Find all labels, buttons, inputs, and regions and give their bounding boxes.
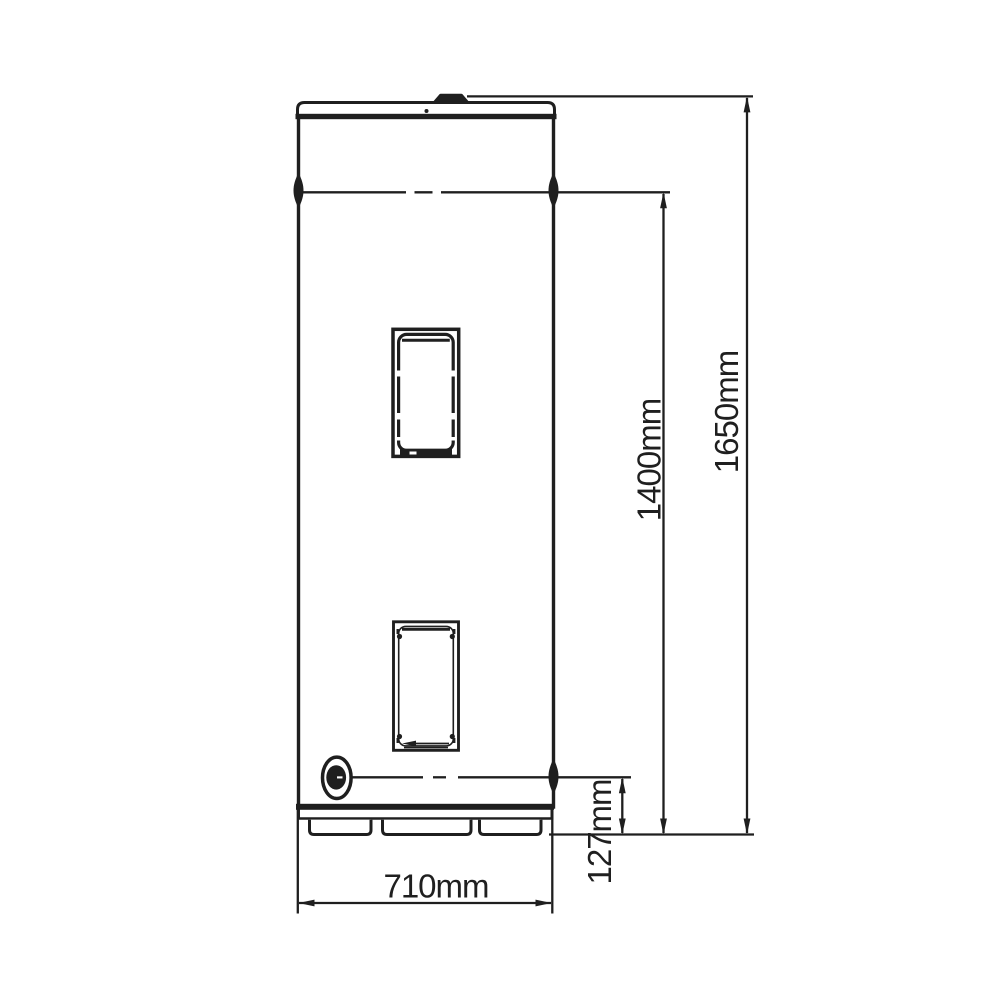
svg-text:1400mm: 1400mm — [631, 399, 668, 521]
svg-text:1650mm: 1650mm — [708, 351, 745, 473]
svg-text:127mm: 127mm — [581, 779, 618, 884]
svg-text:710mm: 710mm — [383, 868, 488, 905]
